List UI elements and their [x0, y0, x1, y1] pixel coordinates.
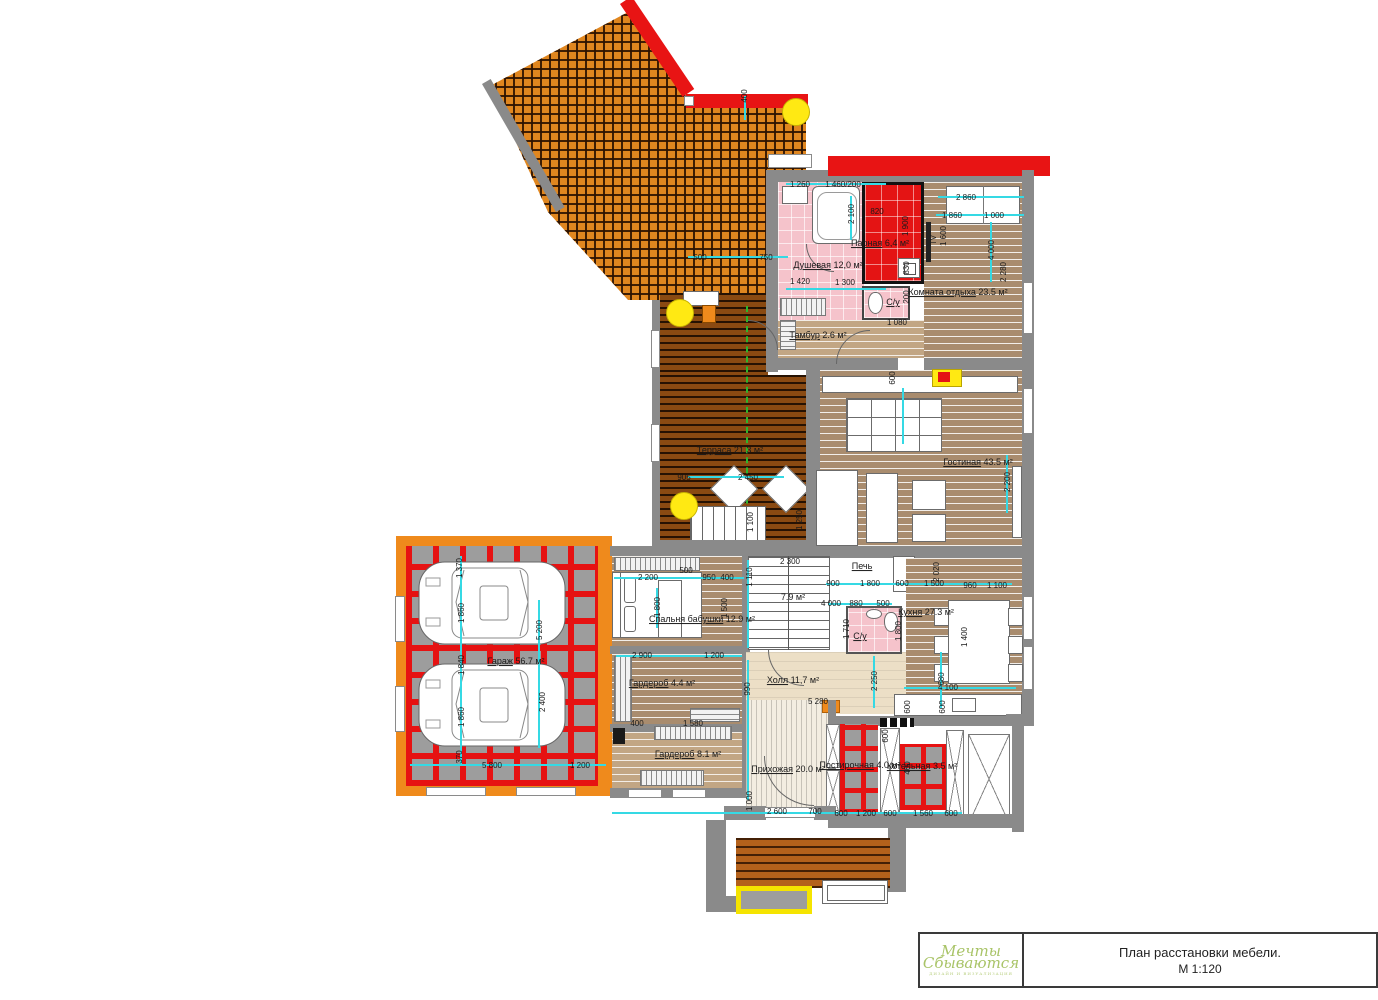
room-name: Печь: [852, 561, 873, 571]
sink-icon: [866, 609, 882, 619]
island-cabinets-icon: [846, 398, 942, 452]
dim-label: 700: [808, 808, 821, 816]
window: [395, 596, 405, 642]
dimension-line: [747, 660, 749, 800]
window: [1023, 646, 1033, 690]
wall: [598, 536, 612, 796]
dim-label: 2 200: [638, 574, 658, 582]
dim-label: 1 710: [843, 619, 851, 639]
wardrobe-icon: [968, 734, 1010, 824]
title-block: Мечты Сбываются ДИЗАЙН И ВИЗУАЛИЗАЦИЯ Пл…: [918, 932, 1378, 988]
room-area: 3.5 м²: [930, 761, 957, 771]
room-label: С/у: [853, 632, 867, 642]
chair-icon: [1008, 608, 1023, 626]
lamp-icon: [670, 492, 698, 520]
armchair-icon: [912, 514, 946, 542]
dim-label: 2 860: [956, 194, 976, 202]
dim-label: 2 280: [1000, 262, 1008, 282]
room-area: 8.1 м²: [694, 749, 721, 759]
staircase-icon: [748, 556, 830, 650]
dim-label: TV: [930, 235, 938, 245]
dimension-line: [938, 196, 1024, 198]
room-name: Гараж: [487, 656, 512, 666]
room-area: 56.7 м²: [513, 656, 545, 666]
lamp-icon: [782, 98, 810, 126]
wall: [396, 536, 612, 546]
wall: [766, 358, 898, 370]
dim-label: 1 300: [835, 279, 855, 287]
dim-label: 2 100: [848, 204, 856, 224]
dim-label: 1 800: [860, 580, 880, 588]
room-area: 23.5 м²: [976, 287, 1008, 297]
dim-label: 500: [876, 600, 889, 608]
room-name: С/у: [886, 297, 900, 307]
room-name: Постирочная: [819, 760, 873, 770]
sheet-scale: М 1:120: [1178, 962, 1221, 976]
dim-label: 600: [889, 371, 897, 384]
room-name: Спальня бабушки: [649, 614, 723, 624]
boiler-icon: [613, 728, 625, 744]
room-label: Гардероб 8.1 м²: [655, 750, 721, 760]
garage-door: [426, 787, 486, 796]
armchair-icon: [912, 480, 946, 510]
shelving-icon: [614, 656, 632, 722]
dim-label: 1 900: [902, 216, 910, 236]
dimension-line: [902, 388, 904, 444]
chair-icon: [1008, 636, 1023, 654]
window: [1023, 596, 1033, 640]
room-name: Тамбур: [789, 330, 820, 340]
dim-label: 600: [944, 810, 957, 818]
dim-label: 600: [882, 729, 890, 742]
dim-label: 1 260: [790, 181, 810, 189]
room-name: С/у: [853, 631, 867, 641]
dimension-line: [826, 583, 1012, 585]
dim-label: 880: [849, 600, 862, 608]
dim-label: 820: [870, 208, 883, 216]
room-name: Котельная: [887, 761, 931, 771]
garage-door: [516, 787, 576, 796]
dim-label: 1 400: [961, 627, 969, 647]
room-area: 43.5 м²: [981, 457, 1013, 467]
room-name: Кухня: [898, 607, 922, 617]
dim-label: 1 800: [895, 621, 903, 641]
porch-steps-inner: [827, 885, 885, 901]
dim-label: 600: [904, 700, 912, 713]
dimension-line: [904, 687, 1016, 689]
dim-label: 1 200: [704, 652, 724, 660]
room-name: Комната отдыха: [908, 287, 976, 297]
room-label: Парная 6,4 м²: [851, 239, 909, 249]
room-label: Тамбур 2.6 м²: [789, 331, 846, 341]
dim-label: 500: [679, 567, 692, 575]
dim-label: 1 200: [856, 810, 876, 818]
dim-label: 2 300: [780, 558, 800, 566]
room-label: Спальня бабушки 12.9 м²: [649, 615, 755, 625]
dim-label: 1 080: [887, 319, 907, 327]
wall: [396, 536, 406, 796]
bar-counter-icon: [822, 376, 1018, 393]
room-label: Душевая 12,0 м²: [793, 261, 862, 271]
dim-label: 2 020: [933, 562, 941, 582]
room-label: Гардероб 4.4 м²: [629, 679, 695, 689]
room-label: Гараж 56.7 м²: [487, 657, 544, 667]
dim-label: 600: [939, 700, 947, 713]
window: [672, 789, 706, 798]
shelving-icon: [654, 726, 732, 740]
dim-label: 2 400: [539, 692, 547, 712]
bed-headboard: [612, 572, 621, 638]
room-name: Гостиная: [943, 457, 981, 467]
window: [651, 330, 660, 368]
boiler-room-floor: [900, 744, 946, 810]
dim-label: 1 000: [984, 212, 1004, 220]
pillow-icon: [624, 577, 636, 603]
bench-icon: [780, 298, 826, 316]
sofa-icon: [866, 473, 898, 543]
room-name: Душевая: [793, 260, 831, 270]
kitchen-sink-icon: [952, 698, 976, 712]
dim-label: 2 600: [767, 808, 787, 816]
window: [1023, 282, 1033, 334]
dim-label: 600: [834, 810, 847, 818]
room-name: Холл: [767, 675, 788, 685]
room-label: Прихожая 20.0 м²: [751, 765, 824, 775]
dim-label: 1 560: [913, 810, 933, 818]
dim-label: 750: [759, 254, 772, 262]
dim-label: 400: [630, 720, 643, 728]
dining-table-icon: [948, 600, 1010, 684]
car-icon: [416, 556, 568, 650]
dim-label: 1 860: [458, 603, 466, 623]
pillow-icon: [624, 606, 636, 632]
dim-label: 5 200: [536, 620, 544, 640]
staircase-stringer: [788, 556, 789, 650]
room-area: 12.9 м²: [723, 614, 755, 624]
dim-label: 1 600: [940, 226, 948, 246]
dim-label: 2 250: [871, 671, 879, 691]
dim-label: 4 000: [821, 600, 841, 608]
room-name: Гардероб: [655, 749, 695, 759]
chair-icon: [1008, 664, 1023, 682]
dim-label: 2 900: [632, 652, 652, 660]
dim-label: 4 000: [988, 240, 996, 260]
window: [651, 424, 660, 462]
dimension-line: [688, 476, 784, 478]
room-label: 7.9 м²: [781, 593, 805, 603]
entry-mat: [736, 886, 812, 914]
wall: [610, 646, 746, 654]
wall: [610, 546, 838, 556]
dim-label: 1 420: [790, 278, 810, 286]
room-name: Гардероб: [629, 678, 669, 688]
dim-label: 1 250: [796, 510, 804, 530]
toilet-icon: [868, 292, 883, 314]
dim-label: 400: [741, 89, 749, 102]
window: [395, 686, 405, 732]
window: [1023, 388, 1033, 434]
dim-label: 905: [677, 474, 690, 482]
dim-label: 1 000: [746, 791, 754, 811]
logo-subtitle: ДИЗАЙН И ВИЗУАЛИЗАЦИЯ: [929, 972, 1013, 975]
logo-line2: Сбываются: [923, 957, 1019, 970]
wall: [888, 820, 906, 892]
window: [768, 154, 812, 168]
dim-label: 2 450: [738, 474, 758, 482]
room-area: 7.9 м²: [781, 592, 805, 602]
dim-label: 370: [456, 750, 464, 763]
dim-label: 950: [702, 574, 715, 582]
wall: [806, 546, 1034, 558]
room-label: Котельная 3.5 м²: [887, 762, 957, 772]
dim-label: 960: [963, 582, 976, 590]
room-label: Холл 11,7 м²: [767, 676, 819, 686]
dim-label: 1 580: [683, 720, 703, 728]
dim-label: 830: [903, 261, 911, 274]
sheet-title: План расстановки мебели.: [1119, 945, 1281, 960]
window: [628, 789, 662, 798]
room-area: 12,0 м²: [831, 260, 863, 270]
appliance-icon: [938, 372, 950, 382]
room-area: 2.6 м²: [820, 330, 847, 340]
room-label: С/у: [886, 298, 900, 308]
dim-label: 900: [826, 580, 839, 588]
dim-label: 1 200: [570, 762, 590, 770]
room-name: Терраса: [697, 445, 732, 455]
shoe-rack-icon: [640, 770, 704, 786]
room-name: Парная: [851, 238, 882, 248]
dim-label: 1 100: [747, 512, 755, 532]
dim-label: 990: [744, 682, 752, 695]
room-label: Комната отдыха 23.5 м²: [908, 288, 1007, 298]
dim-label: 600: [895, 580, 908, 588]
room-area: 6,4 м²: [882, 238, 909, 248]
dim-label: 1 460/200: [825, 181, 861, 189]
dim-label: 4 100: [938, 684, 958, 692]
room-area: 11,7 м²: [788, 675, 819, 685]
dim-label: 2 200: [1004, 472, 1012, 492]
dim-label: 1 110: [746, 567, 754, 586]
dim-label: 1 100: [987, 582, 1007, 590]
dim-label: 1 860: [458, 707, 466, 727]
room-label: Гостиная 43.5 м²: [943, 458, 1012, 468]
company-logo: Мечты Сбываются ДИЗАЙН И ВИЗУАЛИЗАЦИЯ: [920, 934, 1024, 986]
room-label: Кухня 27.3 м²: [898, 608, 954, 618]
room-area: 21.3 м²: [731, 445, 763, 455]
marker-icon: [702, 305, 716, 323]
dim-label: 5 280: [808, 698, 828, 706]
room-area: 27.3 м²: [922, 607, 954, 617]
room-label: Печь: [852, 562, 873, 572]
dim-label: 500: [693, 254, 706, 262]
dim-label: 1 840: [458, 655, 466, 675]
dim-label: 400: [720, 574, 733, 582]
dim-label: 1 370: [456, 558, 464, 578]
dim-label: 600: [883, 810, 896, 818]
dim-label: 1 860: [942, 212, 962, 220]
dimension-line: [786, 288, 886, 290]
window-seat-icon: [1012, 466, 1022, 538]
floor-plan: Мечты Сбываются ДИЗАЙН И ВИЗУАЛИЗАЦИЯ Пл…: [0, 0, 1378, 1000]
sofa-icon: [816, 470, 858, 546]
room-label: Терраса 21.3 м²: [697, 446, 763, 456]
lamp-icon: [666, 299, 694, 327]
appliance-row: [880, 718, 914, 727]
wall: [828, 156, 1050, 176]
dim-label: 5 800: [482, 762, 502, 770]
room-name: Прихожая: [751, 764, 793, 774]
room-area: 4.4 м²: [668, 678, 695, 688]
window: [684, 96, 694, 106]
